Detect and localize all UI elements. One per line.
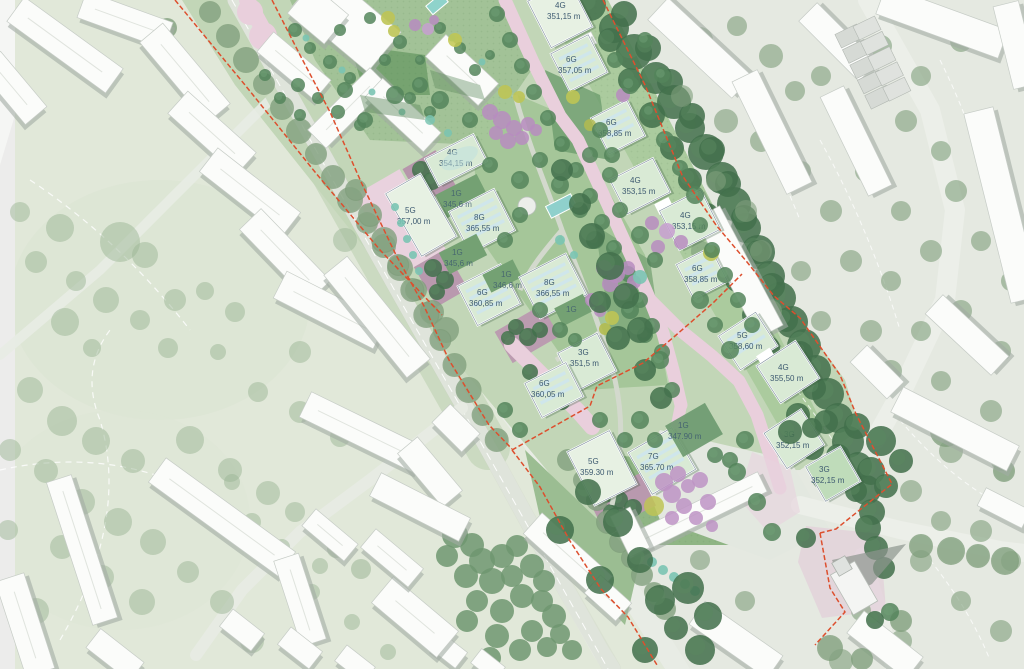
svg-text:352,15 m: 352,15 m (811, 476, 845, 485)
svg-text:365,55 m: 365,55 m (466, 224, 500, 233)
svg-text:345,6 m: 345,6 m (444, 259, 473, 268)
svg-text:366,55 m: 366,55 m (536, 289, 570, 298)
svg-text:1G: 1G (566, 305, 577, 314)
svg-text:351,5 m: 351,5 m (570, 359, 599, 368)
svg-text:6G: 6G (566, 55, 577, 64)
svg-text:351,15 m: 351,15 m (547, 12, 581, 21)
svg-text:3G: 3G (578, 348, 589, 357)
svg-text:347.90 m: 347.90 m (668, 432, 702, 441)
svg-text:8G: 8G (474, 213, 485, 222)
svg-text:357,05 m: 357,05 m (558, 66, 592, 75)
svg-text:360,85 m: 360,85 m (469, 299, 503, 308)
svg-text:1G: 1G (501, 270, 512, 279)
svg-text:3G: 3G (819, 465, 830, 474)
svg-text:5G: 5G (737, 331, 748, 340)
svg-text:7G: 7G (648, 452, 659, 461)
svg-text:1G: 1G (452, 248, 463, 257)
svg-text:345,6 m: 345,6 m (443, 200, 472, 209)
svg-text:5G: 5G (405, 206, 416, 215)
svg-text:365.70 m: 365.70 m (640, 463, 674, 472)
svg-text:355,50 m: 355,50 m (770, 374, 804, 383)
svg-text:6G: 6G (477, 288, 488, 297)
svg-text:6G: 6G (606, 118, 617, 127)
svg-text:1G: 1G (678, 421, 689, 430)
svg-text:4G: 4G (778, 363, 789, 372)
svg-text:5G: 5G (588, 457, 599, 466)
svg-text:359.30 m: 359.30 m (580, 468, 614, 477)
svg-text:8G: 8G (544, 278, 555, 287)
svg-text:6G: 6G (539, 379, 550, 388)
svg-text:1G: 1G (451, 189, 462, 198)
svg-text:358,85 m: 358,85 m (684, 275, 718, 284)
svg-text:346,6 m: 346,6 m (493, 281, 522, 290)
svg-text:4G: 4G (630, 176, 641, 185)
svg-text:6G: 6G (692, 264, 703, 273)
svg-text:360,05 m: 360,05 m (531, 390, 565, 399)
svg-text:4G: 4G (555, 1, 566, 10)
svg-text:4G: 4G (680, 211, 691, 220)
svg-text:353,15 m: 353,15 m (622, 187, 656, 196)
